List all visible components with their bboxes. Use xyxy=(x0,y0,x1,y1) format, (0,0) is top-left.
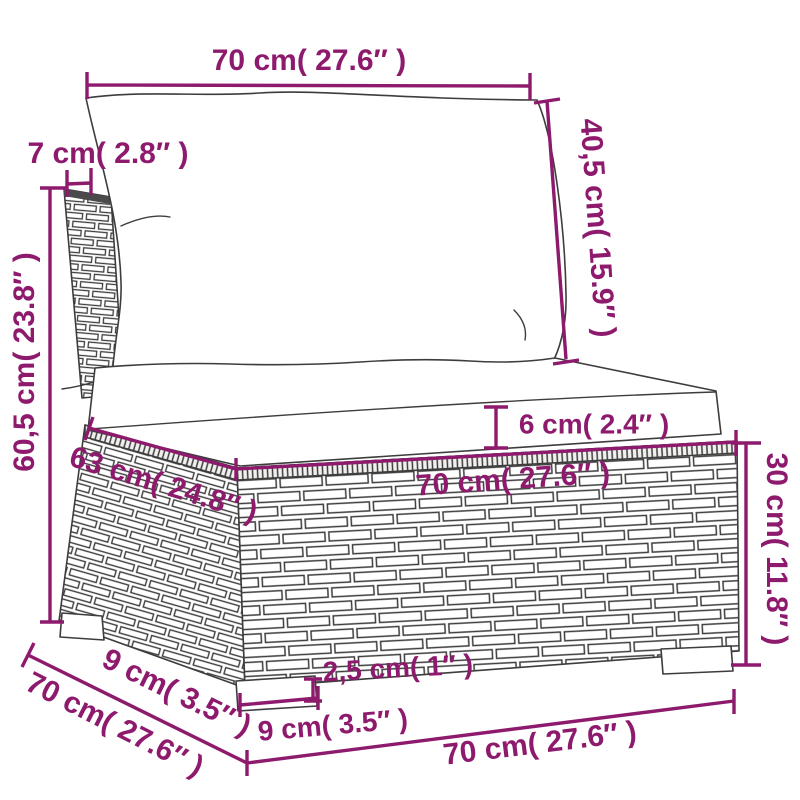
diagram-canvas: 70 cm( 27.6″ ) 7 cm( 2.8″ ) 40,5 cm( 15.… xyxy=(0,0,800,800)
back-cushion xyxy=(86,92,566,376)
dim-label-leg-width: 9 cm( 3.5″ ) xyxy=(257,703,410,747)
dim-label-base-width: 70 cm( 27.6″ ) xyxy=(441,715,638,771)
dim-label-leg-height: 2,5 cm( 1″ ) xyxy=(322,648,474,687)
dimension-diagram: 70 cm( 27.6″ ) 7 cm( 2.8″ ) 40,5 cm( 15.… xyxy=(0,0,800,800)
dim-base-height: 30 cm( 11.8″ ) xyxy=(731,443,793,665)
dim-label-top-width: 70 cm( 27.6″ ) xyxy=(212,44,406,77)
dim-overall-height: 60,5 cm( 23.8″ ) xyxy=(8,188,66,622)
dim-label-seat-cushion-thickness: 6 cm( 2.4″ ) xyxy=(519,408,669,439)
leg-front-right xyxy=(661,646,733,674)
dim-label-overall-height: 60,5 cm( 23.8″ ) xyxy=(8,252,41,472)
leg-back-left xyxy=(60,613,104,640)
dim-label-back-thickness: 7 cm( 2.8″ ) xyxy=(27,137,188,170)
dim-label-back-cushion-height: 40,5 cm( 15.9″ ) xyxy=(573,117,621,338)
sofa-drawing xyxy=(59,92,739,711)
dim-label-base-height: 30 cm( 11.8″ ) xyxy=(760,453,793,646)
dim-leg-height: 2,5 cm( 1″ ) xyxy=(304,648,474,701)
